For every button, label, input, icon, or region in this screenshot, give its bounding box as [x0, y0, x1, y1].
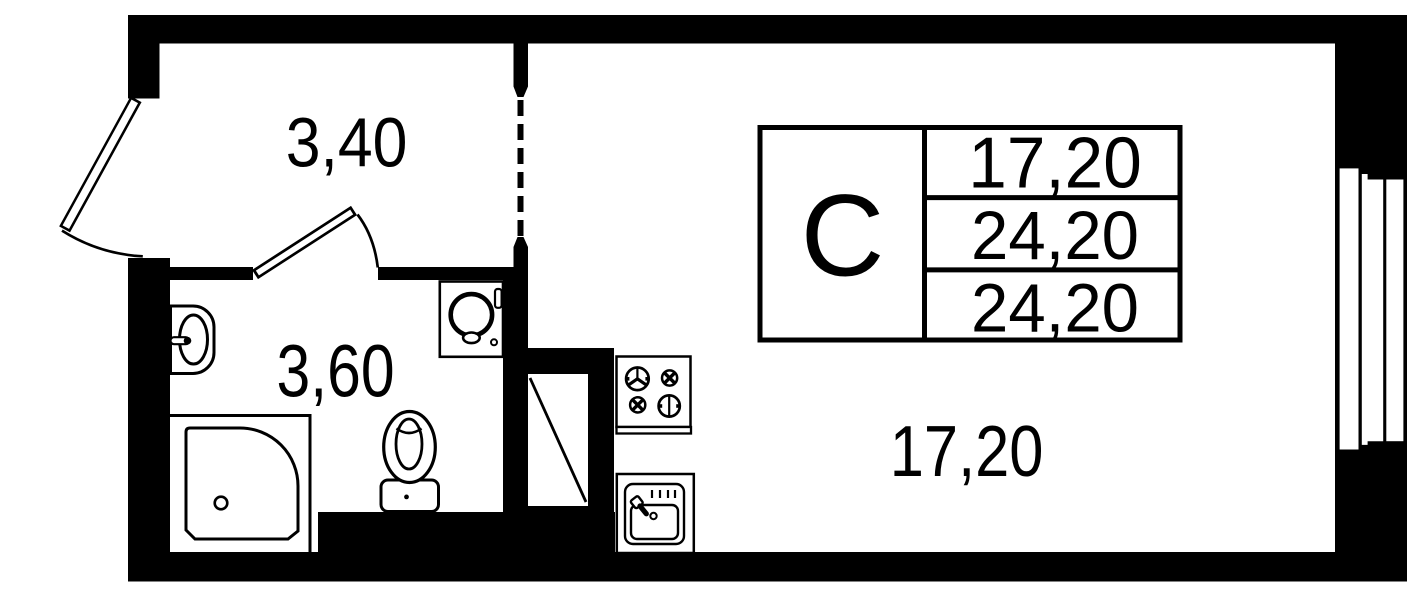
svg-text:17,20: 17,20 [968, 122, 1141, 202]
svg-text:С: С [801, 171, 885, 301]
svg-text:24,20: 24,20 [971, 197, 1139, 274]
svg-text:24,20: 24,20 [971, 270, 1139, 347]
svg-text:17,20: 17,20 [890, 411, 1044, 492]
svg-text:3,40: 3,40 [286, 105, 408, 183]
svg-text:3,60: 3,60 [277, 331, 395, 413]
